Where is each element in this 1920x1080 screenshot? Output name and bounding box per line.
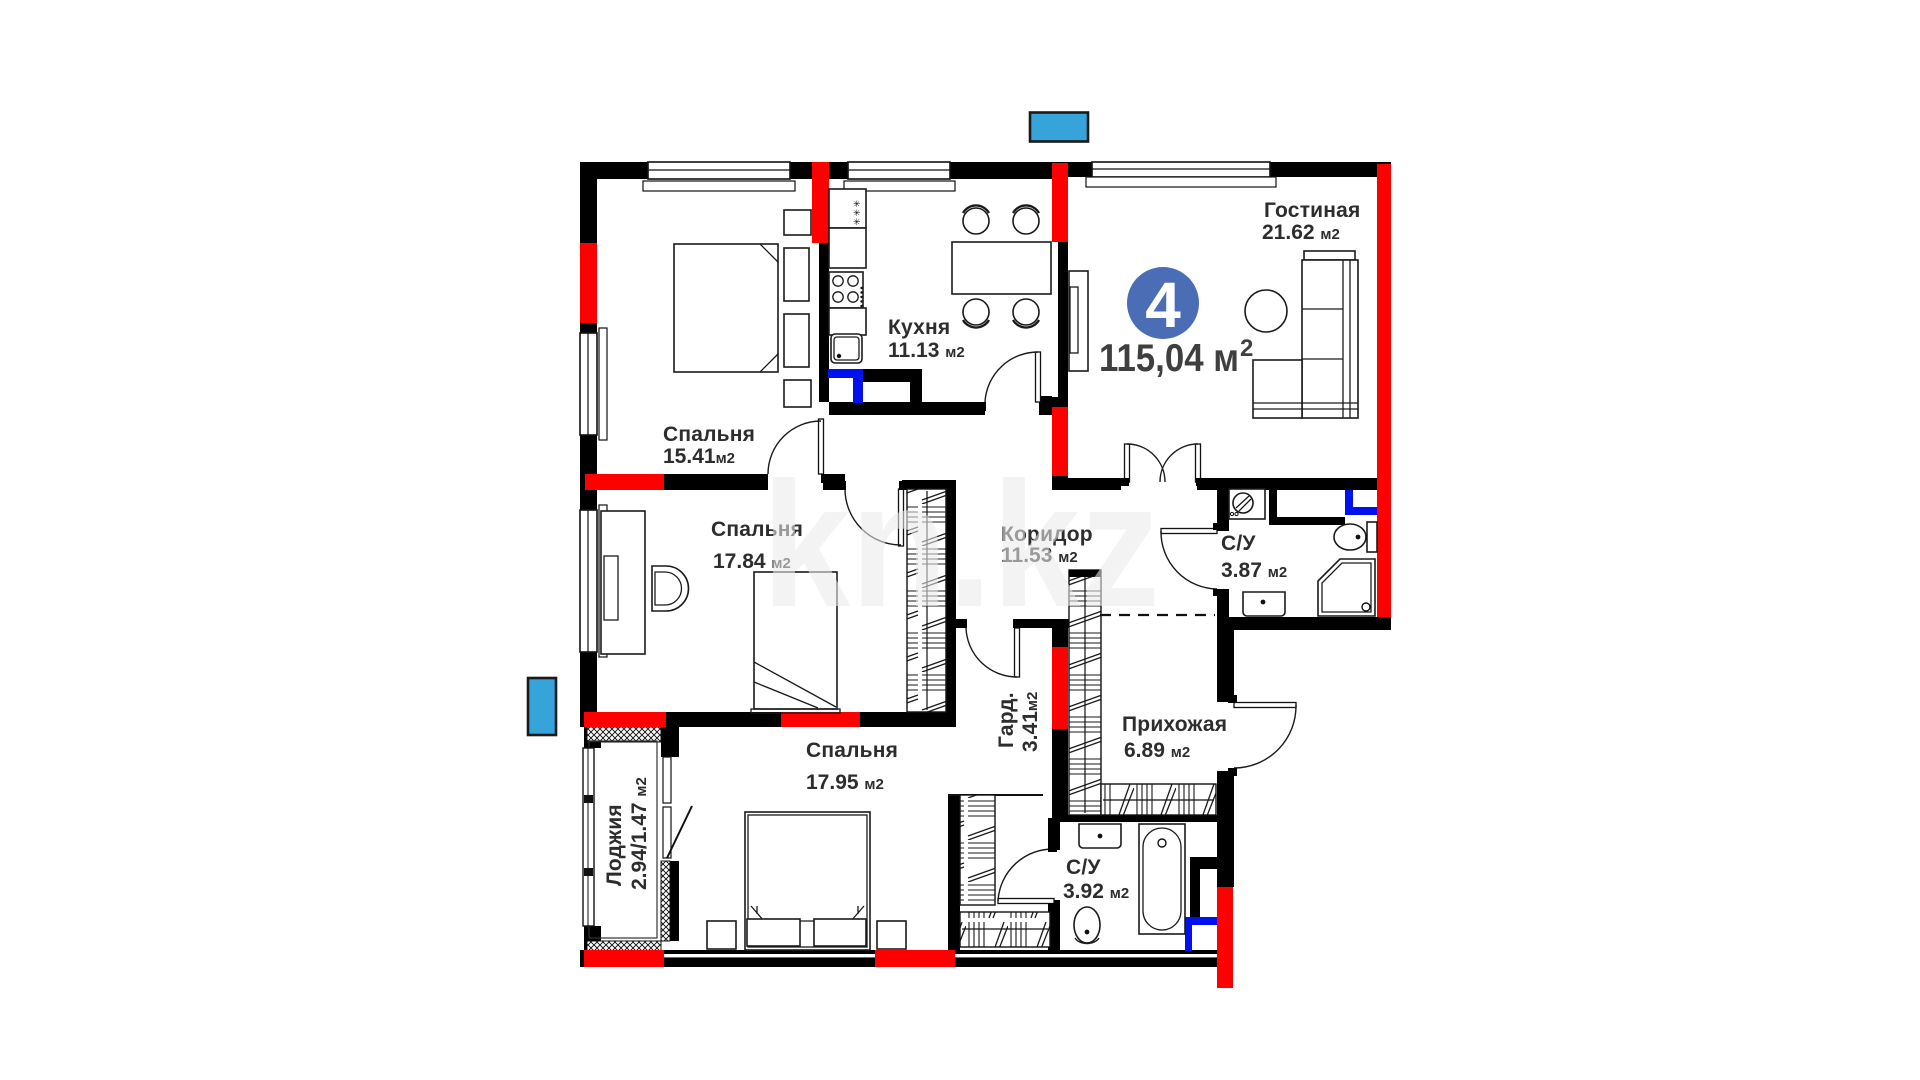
svg-text:Спальня: Спальня <box>806 739 898 762</box>
svg-text:✳: ✳ <box>853 217 861 227</box>
svg-text:kn.kz: kn.kz <box>762 445 1160 644</box>
svg-text:Лоджия: Лоджия <box>603 804 626 886</box>
svg-text:Спальня: Спальня <box>663 423 755 446</box>
svg-text:2: 2 <box>1240 335 1253 362</box>
svg-text:4: 4 <box>1145 269 1181 341</box>
svg-text:С/У: С/У <box>1221 532 1256 555</box>
svg-text:Прихожая: Прихожая <box>1122 713 1227 736</box>
svg-text:Гостиная: Гостиная <box>1264 199 1361 222</box>
svg-text:115,04 м: 115,04 м <box>1099 337 1239 380</box>
svg-text:Кухня: Кухня <box>888 316 950 339</box>
svg-text:Гард.: Гард. <box>995 692 1018 748</box>
svg-text:С/У: С/У <box>1066 856 1101 879</box>
